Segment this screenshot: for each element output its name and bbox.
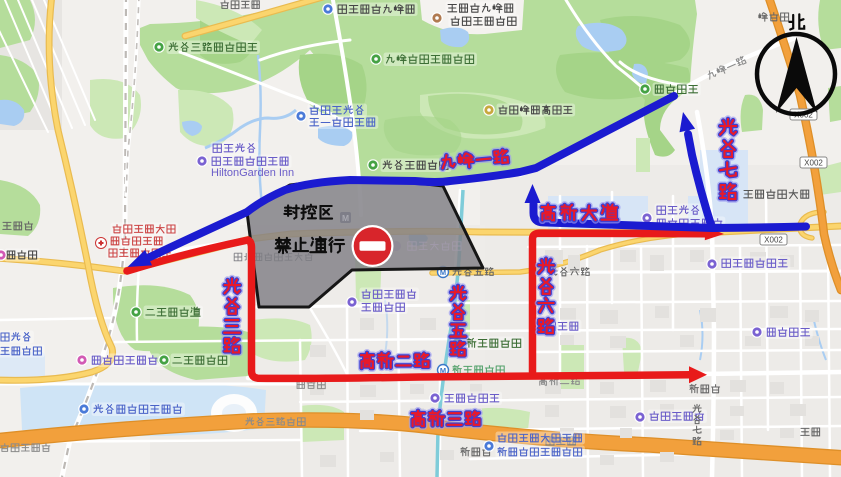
svg-text:HiltonGarden Inn: HiltonGarden Inn: [211, 167, 294, 179]
svg-text:X002: X002: [764, 236, 783, 245]
svg-text:M: M: [342, 213, 349, 223]
svg-text:X002: X002: [804, 159, 823, 168]
